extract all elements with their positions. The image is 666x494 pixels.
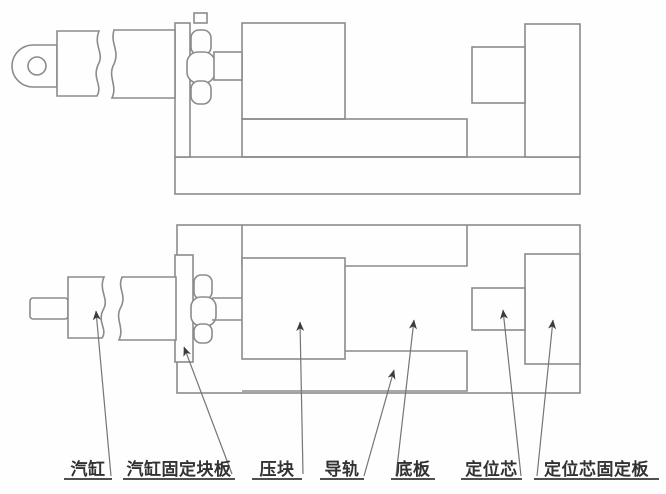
part-label-cylinder: 汽缸	[64, 457, 112, 480]
leader-base-plate	[396, 320, 414, 476]
rod-coupler-side	[214, 52, 242, 80]
part-label-pressure-block: 压块	[252, 457, 302, 480]
cylinder-body-left-side	[57, 31, 100, 96]
cylinder-body-left-plan	[68, 277, 105, 338]
fixture-drawing	[0, 0, 666, 494]
plan-view	[30, 225, 580, 393]
positioning-core-side	[472, 47, 525, 103]
side-view	[12, 13, 580, 194]
positioning-core-plan	[472, 288, 525, 330]
pressure-block-side	[242, 23, 345, 119]
base-plate-side	[175, 157, 580, 194]
rod-nut-middle-side	[187, 52, 215, 83]
part-label-positioning-core-fixing-plate: 定位芯固定板	[534, 457, 659, 480]
pressure-block-plan	[242, 258, 345, 359]
rod-nut-top-plan	[194, 275, 212, 299]
part-label-cylinder-fixing-block-plate: 汽缸固定块板	[123, 457, 235, 480]
cylinder-body-right-plan	[119, 277, 176, 340]
core-fixing-plate-side	[525, 24, 580, 157]
cylinder-rod-stub-plan	[30, 298, 68, 319]
leader-guide-rail	[364, 370, 394, 476]
core-fixing-plate-plan	[525, 254, 580, 364]
guide-rail-side	[242, 119, 467, 157]
technical-drawing-canvas: 汽缸 汽缸固定块板 压块 导轨 底板 定位芯 定位芯固定板	[0, 0, 666, 494]
cylinder-clevis-side	[12, 45, 57, 87]
cylinder-body-right-side	[112, 30, 175, 98]
cylinder-fixing-plate-side	[175, 23, 190, 157]
part-label-base-plate: 底板	[391, 457, 435, 480]
rod-nut-middle-plan	[191, 297, 216, 326]
part-label-guide-rail: 导轨	[320, 457, 364, 480]
rod-nut-bottom-side	[191, 81, 211, 104]
rod-nut-bottom-plan	[194, 324, 212, 343]
part-label-positioning-core: 定位芯	[461, 457, 522, 480]
bolt-tab-side	[194, 13, 207, 23]
